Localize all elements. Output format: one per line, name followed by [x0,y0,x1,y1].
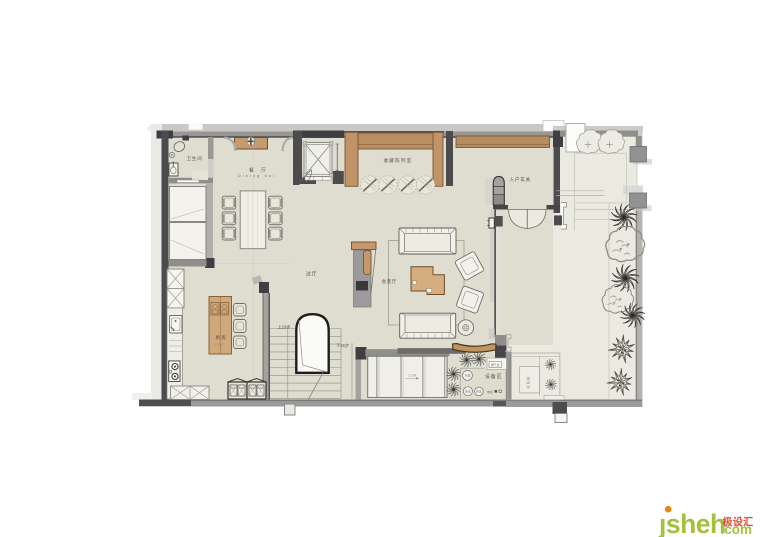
svg-text:Dining hal: Dining hal [238,174,276,178]
svg-text:6.75㎡: 6.75㎡ [215,341,224,346]
svg-text:入户玄关: 入户玄关 [510,176,532,183]
svg-text:空调: 空调 [465,374,471,378]
svg-text:燃气表: 燃气表 [491,363,500,367]
svg-text:会客厅: 会客厅 [382,278,398,285]
svg-text:餐 厅: 餐 厅 [249,167,269,174]
svg-text:上19步: 上19步 [278,324,291,331]
svg-text:收藏陈列室: 收藏陈列室 [384,157,413,164]
svg-text:.com: .com [721,522,753,537]
svg-text:过厅: 过厅 [306,271,317,278]
svg-text:ȷsheh: ȷsheh [658,509,726,537]
svg-text:卫生间: 卫生间 [187,155,203,162]
svg-text:1.1%: 1.1% [408,374,417,378]
svg-text:种植池: 种植池 [526,377,531,390]
svg-text:热水: 热水 [465,389,471,393]
svg-text:设备区: 设备区 [485,373,502,380]
svg-text:厨房: 厨房 [216,334,228,341]
svg-text:电表: 电表 [487,389,493,394]
svg-text:热水: 热水 [476,390,482,394]
